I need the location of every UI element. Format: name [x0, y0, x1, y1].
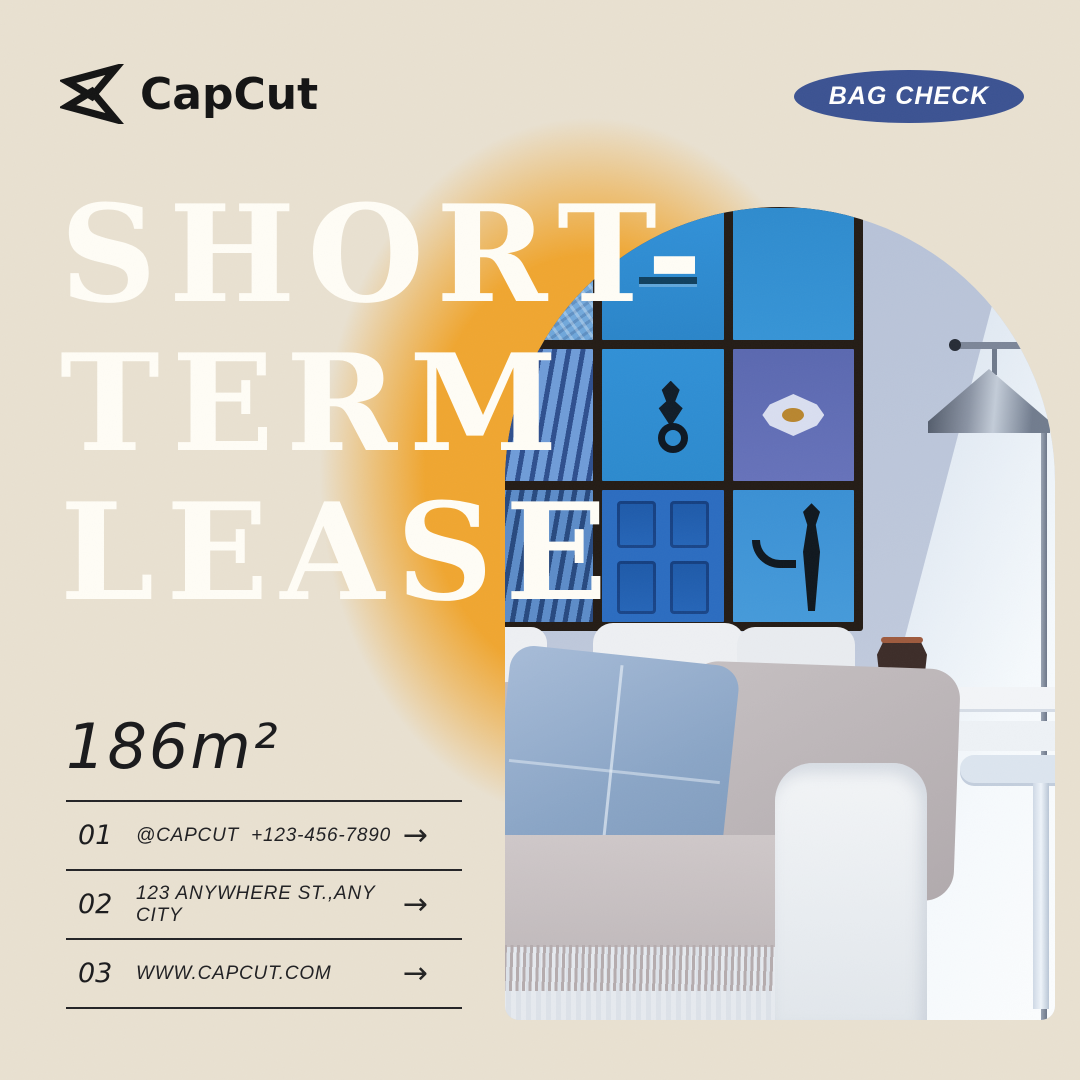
contact-row: 02 123 ANYWHERE ST.,ANY CITY → — [66, 869, 462, 938]
capcut-logo-icon — [60, 64, 124, 124]
contact-number: 03 — [78, 958, 136, 989]
door-plate-center — [782, 408, 804, 422]
brand-name: CapCut — [140, 69, 318, 120]
contact-list: 01 @CAPCUT +123-456-7890 → 02 123 ANYWHE… — [66, 800, 462, 1009]
contact-number: 02 — [78, 889, 136, 920]
door-tile — [733, 490, 854, 622]
door-tile — [733, 349, 854, 481]
door-handle-hook — [752, 540, 796, 568]
door-tile — [733, 208, 854, 340]
arrow-right-icon: → — [403, 818, 428, 853]
c-table-top — [960, 755, 1055, 783]
couch-armrest — [775, 763, 927, 1020]
bag-check-badge: BAG CHECK — [794, 70, 1024, 123]
arrow-right-icon: → — [403, 956, 428, 991]
contact-label: WWW.CAPCUT.COM — [136, 963, 403, 985]
contact-label: @CAPCUT +123-456-7890 — [136, 825, 403, 847]
c-table-leg — [1033, 783, 1049, 1009]
side-table-shelf — [953, 721, 1055, 751]
badge-label: BAG CHECK — [829, 82, 989, 111]
vase-rim — [881, 637, 923, 643]
contact-row: 01 @CAPCUT +123-456-7890 → — [66, 800, 462, 869]
floor-lamp-stem — [992, 349, 997, 375]
hero-title-line: LEASE — [60, 478, 714, 627]
area-size: 186m² — [66, 710, 280, 783]
contact-number: 01 — [78, 820, 136, 851]
hero-title-line: SHORT- — [60, 180, 714, 329]
contact-row: 03 WWW.CAPCUT.COM → — [66, 938, 462, 1007]
floor-lamp-finial — [949, 339, 961, 351]
brand: CapCut — [60, 64, 318, 124]
poster-canvas: CapCut BAG CHECK — [0, 0, 1080, 1080]
hero-title-line: TERM — [60, 329, 714, 478]
door-handle — [803, 503, 820, 611]
floor-lamp-arm — [953, 342, 1031, 349]
contact-label: 123 ANYWHERE ST.,ANY CITY — [136, 883, 403, 927]
hero-title: SHORT- TERM LEASE — [60, 180, 714, 627]
arrow-right-icon: → — [403, 887, 428, 922]
